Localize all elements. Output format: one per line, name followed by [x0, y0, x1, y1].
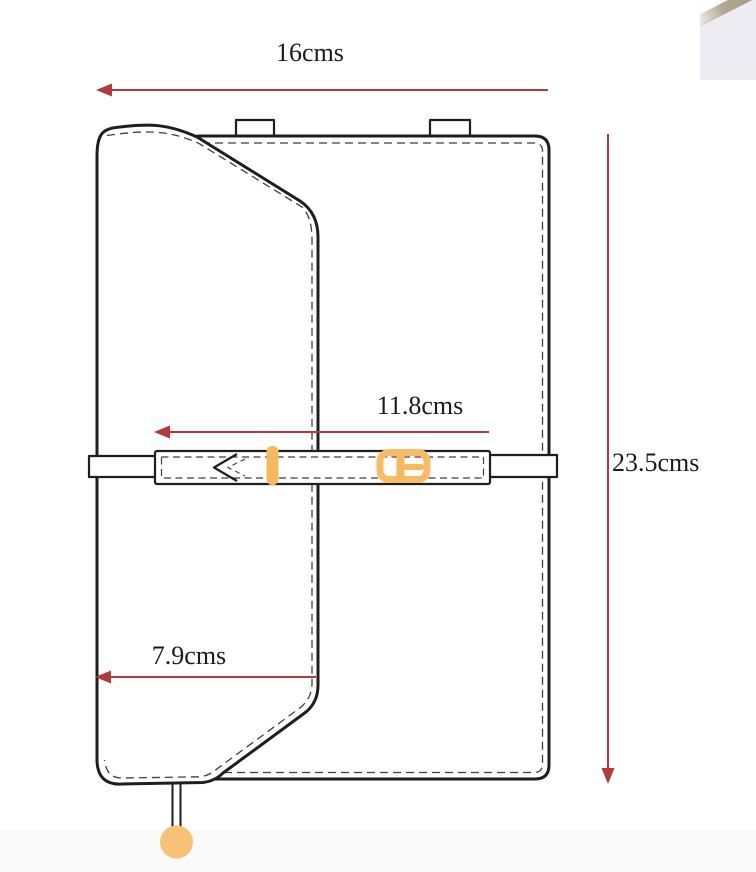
arrowhead-down-icon	[602, 768, 615, 784]
dimension-label-belt-length: 11.8cms	[350, 391, 490, 421]
top-tabs	[236, 120, 470, 136]
bag-measurement-diagram: 16cms 23.5cms 11.8cms 7.9cms	[0, 0, 756, 872]
bag-line-drawing	[0, 0, 756, 872]
knob-ball	[160, 826, 193, 859]
dimension-label-height: 23.5cms	[612, 448, 699, 478]
right-tab	[430, 120, 470, 136]
bottom-knob	[160, 784, 193, 859]
belt-keeper-loop	[267, 446, 279, 485]
dimension-arrow-top-width	[96, 84, 548, 97]
buckle-prong	[403, 464, 424, 470]
left-tab	[236, 120, 274, 136]
left-strap-stub	[89, 456, 157, 477]
dimension-label-top-width: 16cms	[240, 38, 380, 68]
dimension-label-flap-bottom: 7.9cms	[119, 641, 259, 671]
belt	[155, 446, 490, 485]
arrowhead-left-icon	[96, 84, 112, 97]
belt-body	[155, 451, 490, 484]
right-strap-stub	[489, 455, 557, 477]
